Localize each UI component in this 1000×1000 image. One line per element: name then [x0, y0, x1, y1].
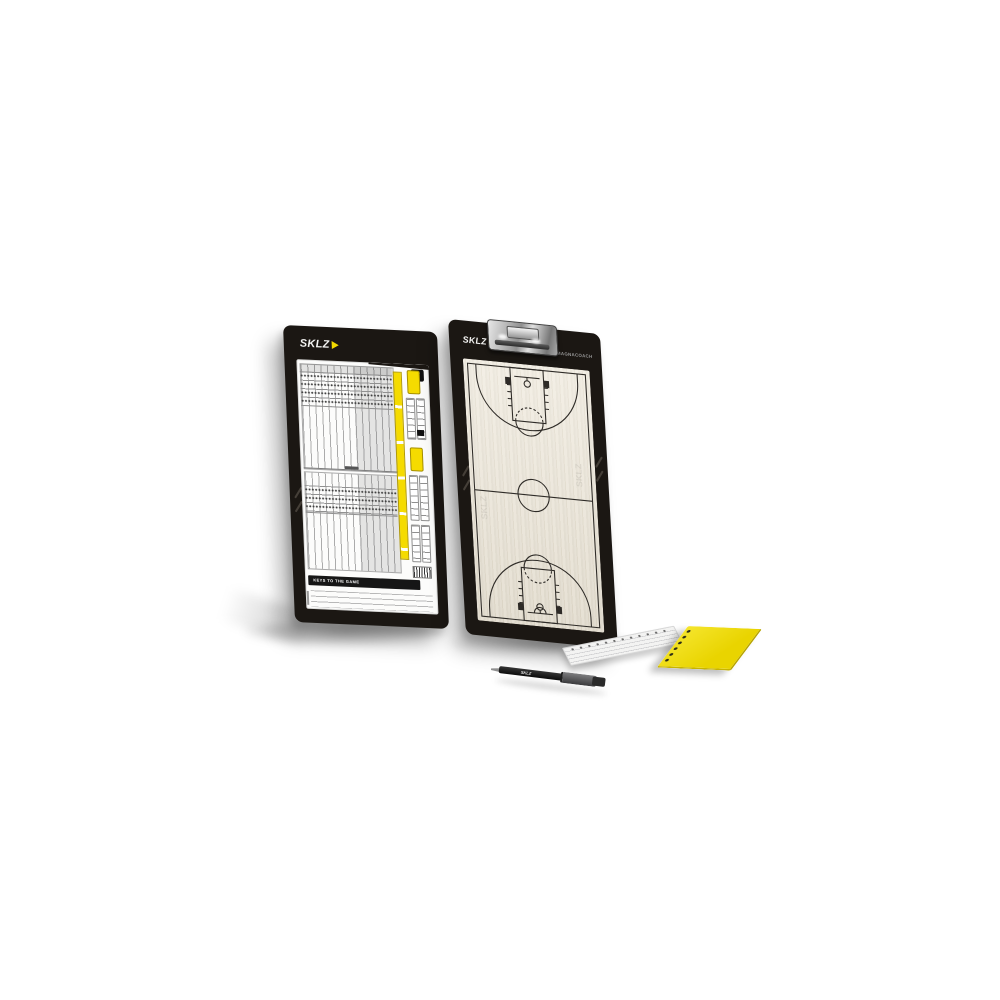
court-watermark: SKLZ [478, 495, 489, 520]
frame-accent [596, 470, 604, 482]
magnacoach-badge: MAGNACOACH [557, 351, 593, 360]
striped-box [413, 566, 432, 579]
clipboard-clip [487, 319, 559, 357]
sklz-wordmark: SKLZ [462, 334, 487, 346]
notes-banner: KEYS TO THE GAME [308, 575, 420, 590]
stat-grid-bottom-tally-rows [304, 485, 397, 517]
fine-print [307, 591, 310, 605]
sklz-arrow-icon [331, 341, 338, 349]
clip-slot [495, 340, 550, 350]
yellow-tab [410, 447, 424, 471]
stat-sheet: S [296, 359, 438, 614]
court-watermark: SKLZ [573, 463, 584, 488]
filled-score-box [417, 430, 424, 436]
frame-accent [595, 456, 603, 468]
stat-board: SKLZ S [283, 325, 449, 629]
court-board: SKLZ MAGNACOACH [448, 319, 618, 649]
score-boxes [411, 524, 422, 562]
stat-grid-top-tally-rows [300, 371, 393, 410]
marker-cap-end [592, 676, 606, 687]
notes-ruled-lines [311, 590, 434, 612]
score-boxes [421, 525, 432, 563]
score-boxes [409, 475, 420, 521]
score-boxes [406, 398, 417, 440]
stat-board-logo: SKLZ [299, 338, 338, 352]
product-photo: SKLZ S [0, 0, 1000, 1000]
score-boxes [419, 475, 430, 521]
court-markings: SKLZ SKLZ [463, 358, 605, 632]
basketball-court: SKLZ SKLZ [463, 358, 605, 632]
sklz-wordmark: SKLZ [299, 338, 329, 351]
clip-shine [498, 334, 507, 340]
yellow-tab [407, 370, 421, 394]
